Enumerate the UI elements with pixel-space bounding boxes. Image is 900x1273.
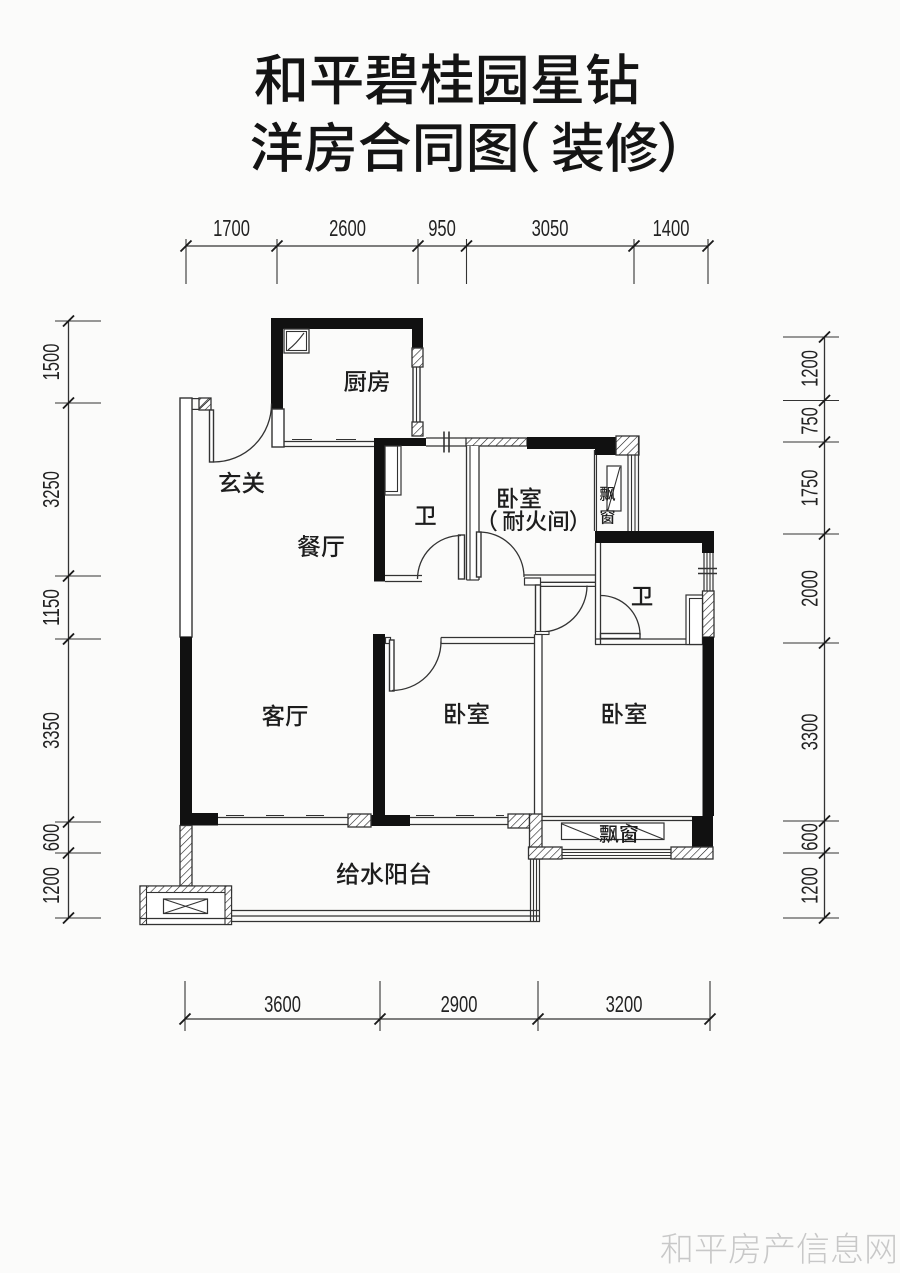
svg-text:2600: 2600 [329, 215, 366, 241]
svg-text:3050: 3050 [532, 215, 569, 241]
svg-text:600: 600 [797, 823, 823, 851]
svg-text:3250: 3250 [38, 471, 64, 508]
svg-text:1150: 1150 [38, 589, 64, 626]
svg-text:3300: 3300 [797, 714, 823, 751]
svg-text:1500: 1500 [38, 344, 64, 381]
svg-text:1200: 1200 [797, 867, 823, 904]
svg-text:1750: 1750 [797, 470, 823, 507]
svg-text:3200: 3200 [606, 991, 643, 1017]
svg-text:1200: 1200 [38, 867, 64, 904]
svg-text:1700: 1700 [213, 215, 250, 241]
svg-text:950: 950 [428, 215, 456, 241]
svg-text:2000: 2000 [797, 570, 823, 607]
svg-text:1400: 1400 [653, 215, 690, 241]
svg-text:3600: 3600 [264, 991, 301, 1017]
svg-text:750: 750 [797, 407, 823, 435]
svg-text:1200: 1200 [797, 350, 823, 387]
svg-text:600: 600 [38, 824, 64, 852]
svg-text:2900: 2900 [441, 991, 478, 1017]
svg-text:3350: 3350 [38, 712, 64, 749]
